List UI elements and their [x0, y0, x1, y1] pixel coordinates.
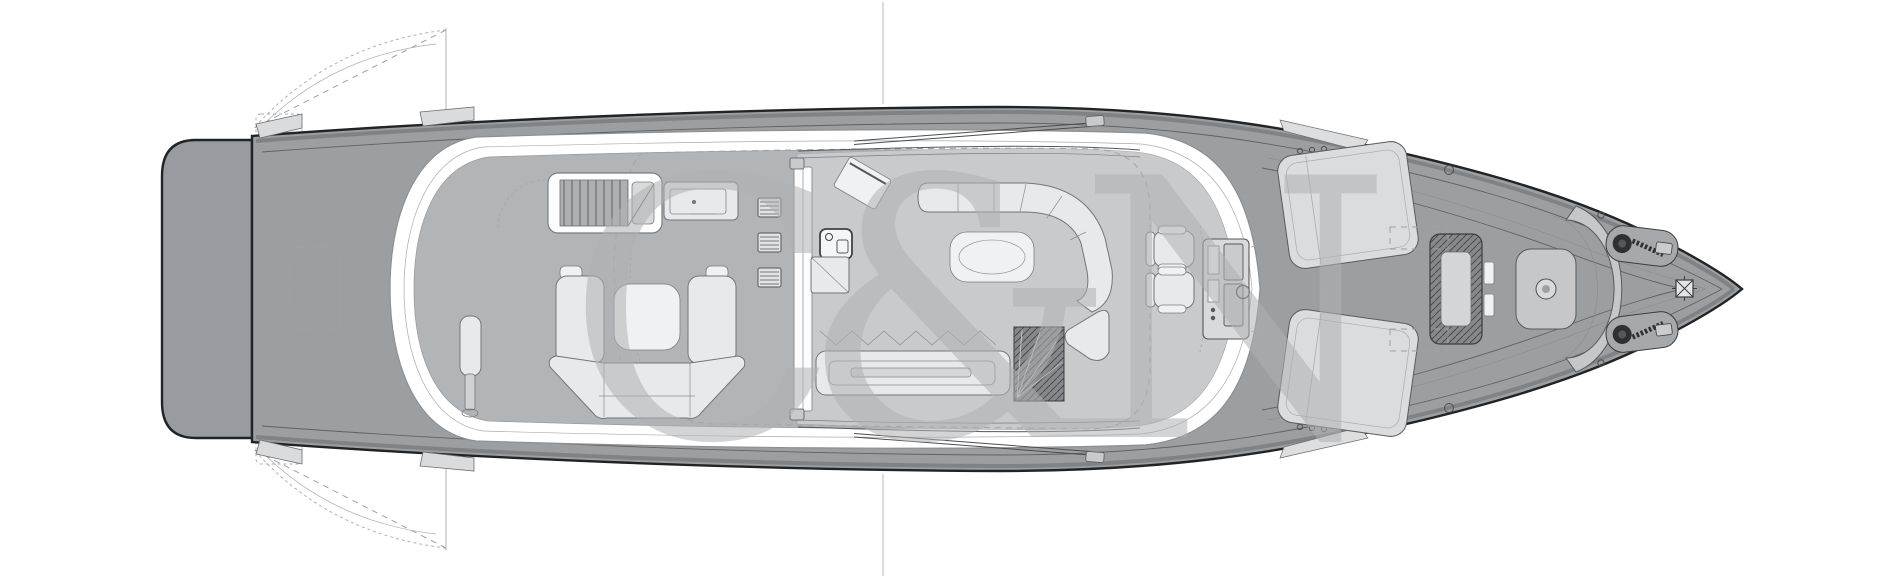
fan-edge-line	[254, 450, 446, 548]
bow-table	[1516, 249, 1576, 329]
watermark-logo: C&N	[566, 103, 1382, 522]
swim-platform	[162, 140, 252, 438]
fan-inner-arc	[258, 44, 436, 130]
fan-edge-line	[254, 30, 446, 128]
deck-plan-drawing: C&N	[0, 0, 1900, 578]
fan-arc	[256, 452, 446, 548]
bow-deck-fitting	[1672, 276, 1697, 301]
fan-arc	[256, 30, 446, 126]
yacht-deck-plan: C&N	[0, 0, 1900, 578]
fan-inner-arc	[258, 448, 436, 534]
